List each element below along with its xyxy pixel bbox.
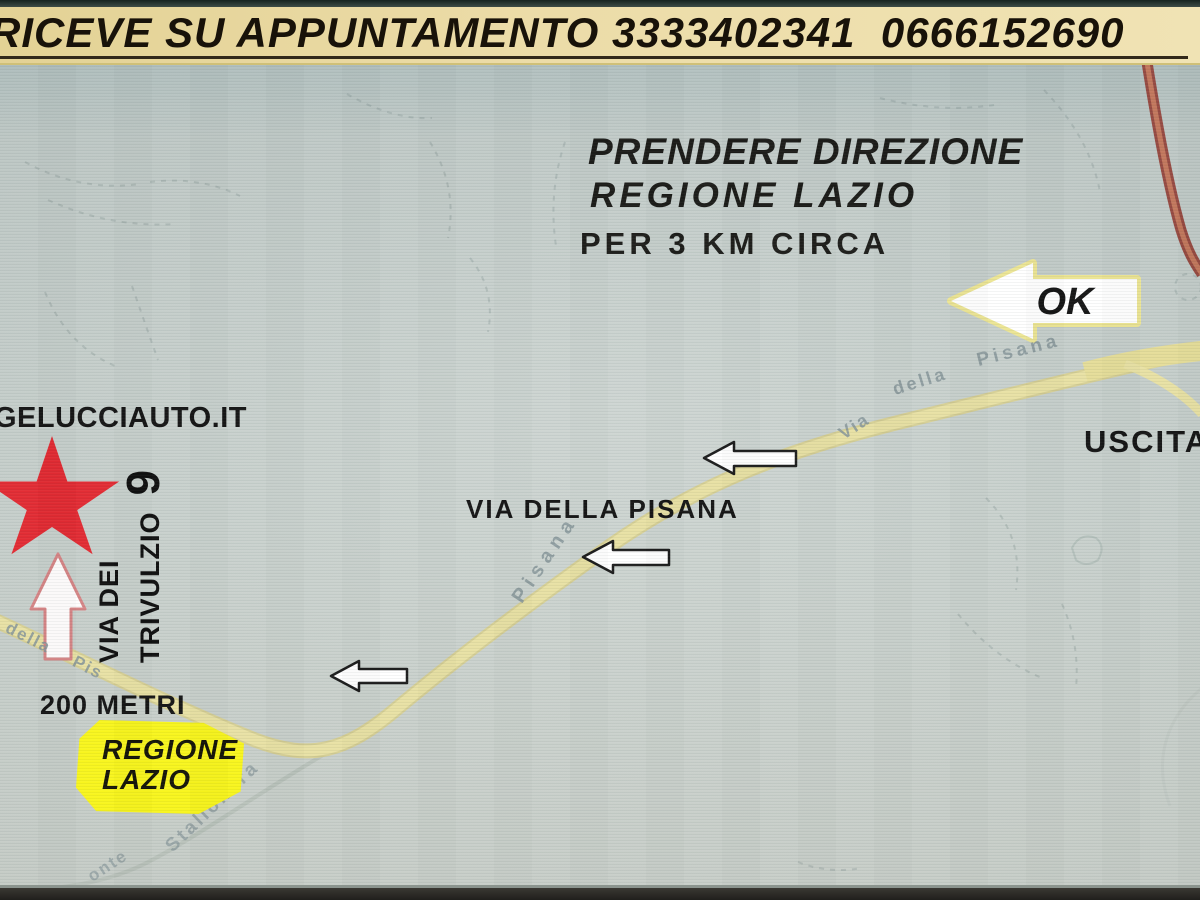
exit-label: USCITA	[1084, 424, 1200, 460]
dealer-address-vertical: VIA DEI TRIVULZIO 9	[93, 445, 169, 663]
highway-gra	[1146, 56, 1200, 274]
address-street-name: TRIVULZIO	[132, 512, 168, 664]
screen-photo: Via della Pisana Pisana della Pis Stallo…	[0, 0, 1200, 900]
ok-arrow-label: OK	[1030, 281, 1100, 324]
directions-line-2: REGIONE LAZIO	[590, 176, 918, 216]
directions-line-1: PRENDERE DIREZIONE	[588, 131, 1023, 173]
arrow-left-2	[583, 541, 669, 573]
hand-smudge	[1072, 536, 1102, 564]
photo-top-edge	[0, 0, 1200, 7]
address-street-number: 9	[125, 470, 161, 496]
roundabout-circle	[1175, 274, 1200, 300]
address-street-line2: TRIVULZIO 9	[125, 445, 168, 663]
via-della-pisana-label: VIA DELLA PISANA	[466, 494, 739, 525]
arrow-left-3	[331, 661, 407, 691]
badge-line-1: REGIONE	[102, 735, 244, 765]
directions-line-3: PER 3 KM CIRCA	[580, 226, 889, 262]
road-exit-ramp	[1125, 364, 1200, 414]
banner-underline	[0, 56, 1188, 59]
distance-label: 200 METRI	[40, 690, 186, 721]
road-right-squiggle	[1163, 688, 1200, 806]
regione-lazio-badge: REGIONE LAZIO	[76, 720, 244, 814]
appointment-banner: RICEVE SU APPUNTAMENTO 3333402341 066615…	[0, 7, 1200, 65]
photo-bottom-strip	[0, 888, 1200, 900]
dealer-website-label: GELUCCIAUTO.IT	[0, 402, 247, 435]
badge-line-2: LAZIO	[102, 765, 244, 795]
appointment-banner-text: RICEVE SU APPUNTAMENTO 3333402341 066615…	[0, 9, 1200, 57]
